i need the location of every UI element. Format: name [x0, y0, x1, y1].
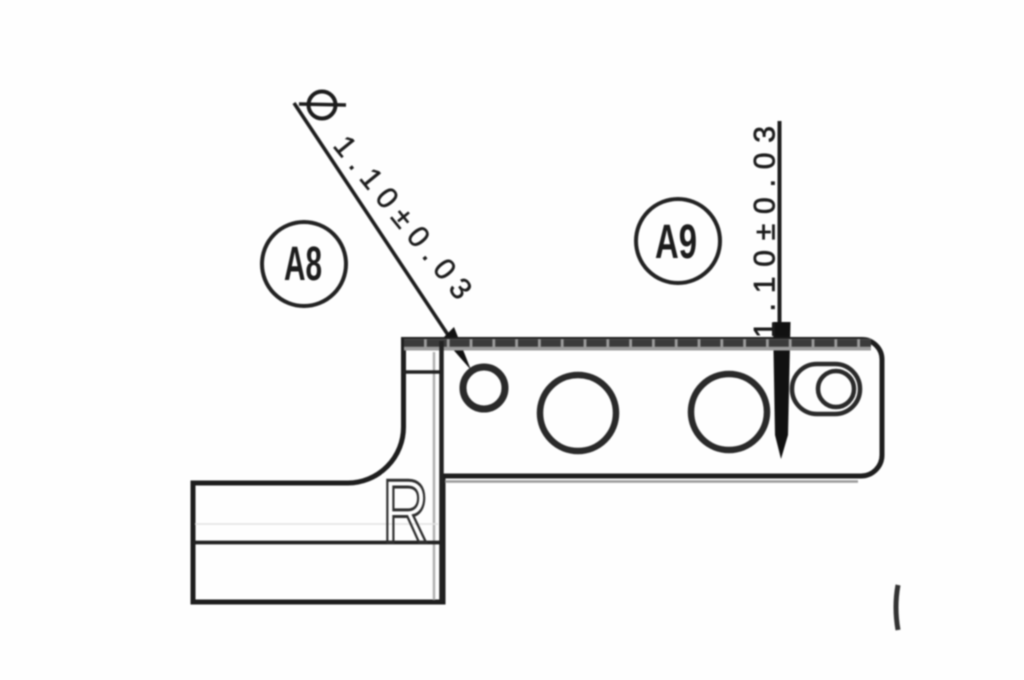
svg-text:1.10±0.03: 1.10±0.03	[749, 126, 782, 338]
svg-text:R: R	[382, 462, 429, 562]
svg-text:1.10±0.03: 1.10±0.03	[327, 130, 479, 306]
svg-text:A9: A9	[655, 216, 697, 269]
svg-text:A8: A8	[284, 238, 322, 291]
